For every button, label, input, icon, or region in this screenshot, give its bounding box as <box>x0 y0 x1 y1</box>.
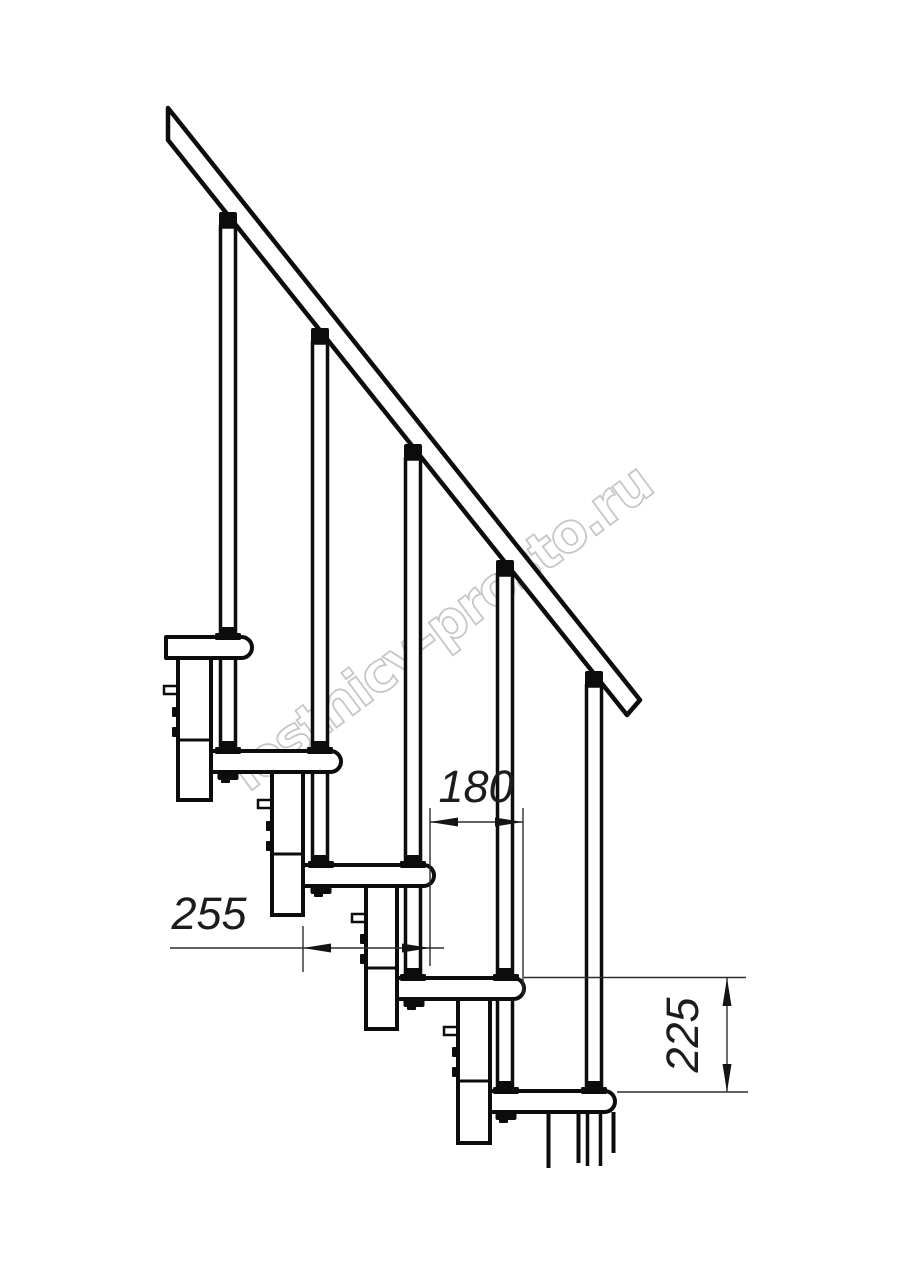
foot-fitting-icon <box>215 633 241 640</box>
nut-icon <box>218 771 239 780</box>
stud-icon <box>172 727 180 737</box>
baluster-cap-icon <box>496 560 514 575</box>
foot-fitting-icon <box>308 861 334 868</box>
baluster-3 <box>406 459 421 865</box>
rod-1 <box>221 658 236 751</box>
baluster-5 <box>587 686 602 1091</box>
nut-icon <box>311 885 332 894</box>
arrow-left-icon <box>303 944 331 953</box>
baluster-cap-icon <box>585 671 603 686</box>
dimension-label-run: 180 <box>438 761 513 812</box>
baluster-cap-icon <box>311 328 329 343</box>
foot-fitting-icon <box>493 1087 519 1094</box>
foot-fitting-icon <box>405 855 421 862</box>
foot-fitting-icon <box>220 741 236 748</box>
foot-fitting-icon <box>586 1081 602 1088</box>
baluster-cap-icon <box>404 444 422 459</box>
baluster-1 <box>221 227 236 637</box>
stud-icon <box>266 841 274 851</box>
foot-fitting-icon <box>215 747 241 754</box>
arrow-down-icon <box>723 1064 732 1092</box>
foot-fitting-icon <box>493 974 519 981</box>
dimension-labels: 180 255 225 <box>170 761 708 1074</box>
baluster-2 <box>313 343 328 751</box>
dimension-label-rise: 225 <box>657 996 708 1073</box>
stud-icon <box>452 1047 460 1057</box>
module-1 <box>178 658 211 800</box>
foot-fitting-icon <box>405 968 421 975</box>
foot-fitting-icon <box>313 855 329 862</box>
stud-icon <box>360 954 368 964</box>
foot-fitting-icon <box>220 627 236 634</box>
module-3 <box>366 886 397 1029</box>
nut-icon <box>221 779 230 783</box>
module-2 <box>272 772 303 915</box>
nut-icon <box>499 1119 508 1123</box>
arrow-left-icon <box>430 818 458 827</box>
staircase-diagram: lestnicy-prosto.ru <box>0 0 914 1280</box>
module-4 <box>458 999 490 1143</box>
rod-4 <box>498 999 513 1091</box>
rod-2 <box>313 772 328 865</box>
foot-fitting-icon <box>400 974 426 981</box>
tread-3 <box>303 865 434 886</box>
module-5-partial <box>549 1112 614 1168</box>
foot-fitting-icon <box>498 968 514 975</box>
stud-icon <box>360 934 368 944</box>
nut-icon <box>404 998 425 1007</box>
arrow-up-icon <box>723 978 732 1006</box>
tread-5 <box>490 1091 615 1112</box>
foot-fitting-icon <box>400 861 426 868</box>
foot-fitting-icon <box>307 747 333 754</box>
foot-fitting-icon <box>312 741 328 748</box>
foot-fitting-icon <box>498 1081 514 1088</box>
rod-3 <box>406 886 421 978</box>
nut-icon <box>407 1006 416 1010</box>
nut-icon <box>314 893 323 897</box>
stud-icon <box>266 821 274 831</box>
baluster-cap-icon <box>219 212 237 227</box>
tread-2 <box>211 751 341 772</box>
tread-1 <box>166 637 252 658</box>
nut-icon <box>496 1111 517 1120</box>
stud-icon <box>172 707 180 717</box>
dimension-label-depth: 255 <box>170 888 247 939</box>
tread-4 <box>397 978 524 999</box>
stud-icon <box>452 1067 460 1077</box>
drawing-canvas: lestnicy-prosto.ru <box>0 0 914 1280</box>
foot-fitting-icon <box>581 1087 607 1094</box>
